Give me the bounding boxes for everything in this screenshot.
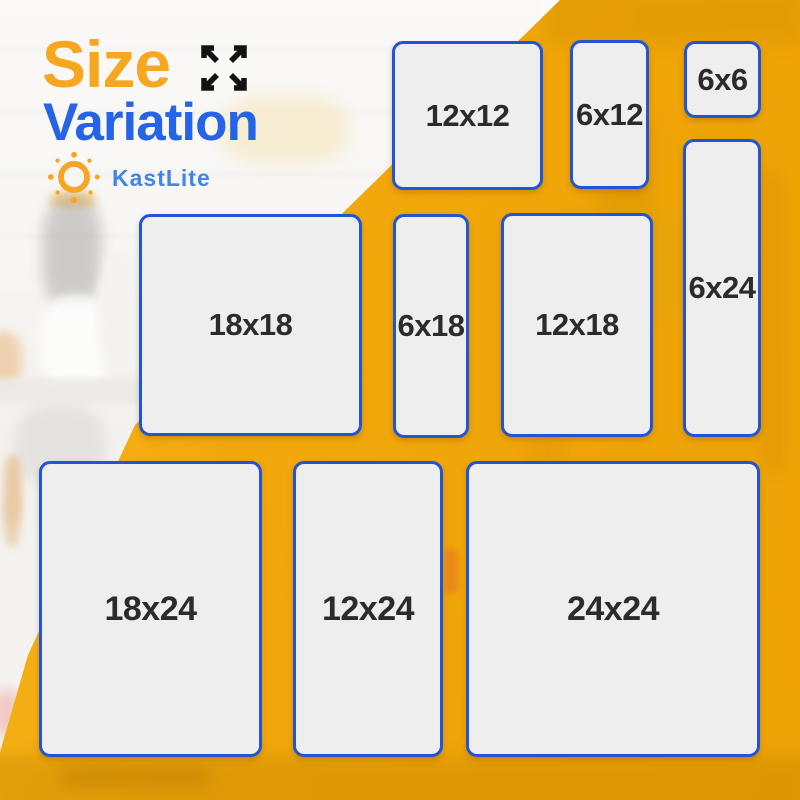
title-word-size: Size xyxy=(42,26,170,102)
size-card-label: 6x24 xyxy=(689,270,756,306)
size-card-label: 6x12 xyxy=(576,97,643,133)
size-card-6x24: 6x24 xyxy=(683,139,761,437)
silhouette-orange-handle xyxy=(444,548,458,594)
photo-cup-stack xyxy=(98,250,140,380)
size-card-18x18: 18x18 xyxy=(139,214,362,436)
silhouette-tool-strip xyxy=(760,170,786,470)
size-card-12x18: 12x18 xyxy=(501,213,653,437)
size-card-label: 6x6 xyxy=(697,62,747,98)
silhouette-top-shelf xyxy=(545,0,800,45)
size-card-24x24: 24x24 xyxy=(466,461,760,757)
size-card-label: 12x12 xyxy=(426,98,510,134)
photo-brush-cup xyxy=(42,195,102,310)
expand-arrows-icon xyxy=(196,40,252,96)
title-word-variation: Variation xyxy=(43,92,258,153)
silhouette-hammer xyxy=(60,768,210,786)
sun-icon xyxy=(46,148,104,206)
size-card-18x24: 18x24 xyxy=(39,461,262,757)
size-card-label: 24x24 xyxy=(567,590,659,629)
size-card-6x6: 6x6 xyxy=(684,41,761,118)
size-card-12x24: 12x24 xyxy=(293,461,443,757)
size-card-6x12: 6x12 xyxy=(570,40,649,189)
size-card-12x12: 12x12 xyxy=(392,41,543,190)
brand-name: KastLite xyxy=(112,165,211,192)
size-card-label: 18x24 xyxy=(104,590,196,629)
size-card-label: 6x18 xyxy=(398,308,465,344)
photo-wood-handle-2 xyxy=(4,492,20,547)
size-variation-infographic: Size Variation KastLite 12x126x126x66x24… xyxy=(0,0,800,800)
size-card-label: 12x24 xyxy=(322,590,414,629)
size-card-label: 12x18 xyxy=(535,307,619,343)
size-card-6x18: 6x18 xyxy=(393,214,469,438)
size-card-label: 18x18 xyxy=(209,307,293,343)
